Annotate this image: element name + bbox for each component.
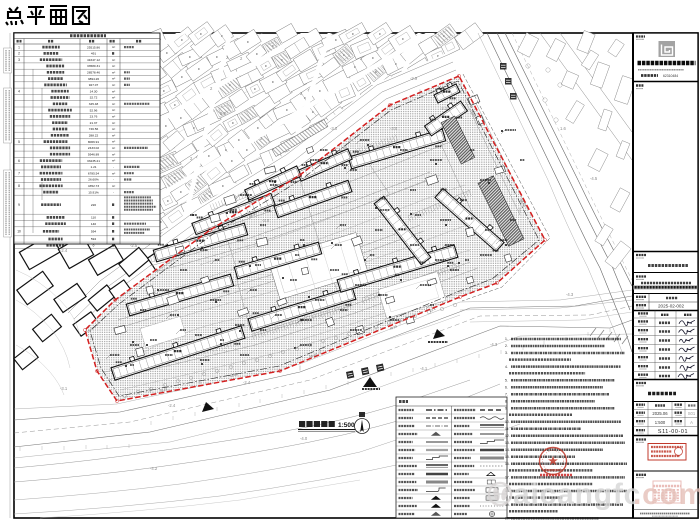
svg-text:-: - — [113, 190, 114, 194]
svg-text:m²: m² — [112, 89, 115, 93]
svg-text:2.8: 2.8 — [220, 111, 226, 116]
svg-text:-3.0: -3.0 — [390, 126, 398, 131]
svg-text:7.: 7. — [505, 392, 508, 396]
svg-text:m²: m² — [112, 184, 115, 188]
svg-text:16.: 16. — [505, 462, 510, 466]
svg-text:746.56: 746.56 — [89, 127, 99, 131]
svg-text:m²: m² — [112, 121, 115, 125]
svg-text:23.76: 23.76 — [90, 115, 98, 119]
svg-text:220: 220 — [91, 203, 96, 207]
svg-text:4.: 4. — [505, 365, 508, 369]
svg-text:1.6: 1.6 — [560, 126, 566, 131]
svg-text:6.: 6. — [505, 385, 508, 389]
svg-text:-4.0: -4.0 — [300, 436, 308, 441]
svg-text:3.: 3. — [505, 351, 508, 355]
svg-text:4352.73: 4352.73 — [88, 184, 99, 188]
svg-text:52.96: 52.96 — [90, 108, 98, 112]
svg-text:m²: m² — [112, 146, 115, 150]
svg-text:5946.89: 5946.89 — [88, 152, 99, 156]
svg-text:11.: 11. — [505, 427, 510, 431]
svg-text:15.91%: 15.91% — [88, 190, 99, 194]
svg-text:32.72: 32.72 — [90, 96, 98, 100]
svg-text:33580.31: 33580.31 — [87, 64, 100, 68]
svg-text:-2.4: -2.4 — [168, 403, 176, 408]
svg-text:10.: 10. — [505, 420, 510, 424]
svg-text:2025-02-002: 2025-02-002 — [658, 304, 684, 309]
svg-text:-3.0: -3.0 — [262, 218, 270, 223]
svg-text:m²: m² — [112, 102, 115, 106]
svg-text:9: 9 — [18, 203, 20, 207]
svg-text:1.21: 1.21 — [90, 165, 96, 169]
svg-text:m²: m² — [112, 96, 115, 100]
svg-text:5.: 5. — [505, 378, 508, 382]
svg-text:5: 5 — [18, 140, 20, 144]
svg-text:2025.06: 2025.06 — [652, 411, 668, 416]
svg-text:6785.54: 6785.54 — [88, 171, 99, 175]
svg-text:14.: 14. — [505, 448, 510, 452]
svg-text:62310484: 62310484 — [663, 74, 678, 78]
svg-text:9.: 9. — [505, 406, 508, 410]
svg-text:-3.0: -3.0 — [330, 126, 338, 131]
svg-text:m²: m² — [112, 115, 115, 119]
svg-text:8.: 8. — [505, 399, 508, 403]
svg-text:110: 110 — [91, 216, 96, 220]
svg-text:-: - — [113, 165, 114, 169]
svg-text:-4.3: -4.3 — [566, 292, 574, 297]
svg-text:1.: 1. — [505, 337, 508, 341]
svg-text:15.: 15. — [505, 455, 510, 459]
svg-text:1:500: 1:500 — [655, 420, 666, 425]
svg-text:-2.4: -2.4 — [60, 248, 68, 253]
svg-text:26.60%: 26.60% — [88, 178, 99, 182]
svg-text:2433.02: 2433.02 — [88, 146, 99, 150]
svg-text:3: 3 — [18, 58, 20, 62]
svg-text:m²: m² — [112, 108, 115, 112]
svg-text:594: 594 — [91, 230, 96, 234]
svg-text:17.: 17. — [505, 476, 510, 480]
svg-text:-4.5: -4.5 — [590, 176, 598, 181]
svg-text:0: 0 — [93, 244, 95, 248]
svg-text:-2.4: -2.4 — [243, 380, 251, 385]
svg-text:491: 491 — [91, 52, 96, 56]
svg-text:8066.91: 8066.91 — [88, 140, 99, 144]
svg-text:927.07: 927.07 — [89, 83, 99, 87]
svg-text:-4.2: -4.2 — [150, 466, 158, 471]
svg-text:m²: m² — [112, 127, 115, 131]
svg-text:2: 2 — [18, 52, 20, 56]
svg-text:-: - — [113, 178, 114, 182]
svg-text:14.30: 14.30 — [90, 89, 98, 93]
svg-text:S11-00-01: S11-00-01 — [658, 429, 688, 435]
svg-text:10: 10 — [17, 230, 21, 234]
svg-text:1: 1 — [18, 45, 20, 49]
svg-text:28578.46: 28578.46 — [87, 71, 100, 75]
svg-text:-4.1: -4.1 — [420, 366, 428, 371]
svg-text:594: 594 — [91, 237, 96, 241]
svg-text:41647.12: 41647.12 — [87, 58, 100, 62]
svg-text:6: 6 — [18, 159, 20, 163]
svg-text:.com: .com — [633, 478, 700, 511]
svg-text:1:500: 1:500 — [338, 422, 355, 429]
svg-text:345.48: 345.48 — [89, 102, 99, 106]
svg-text:288.22: 288.22 — [89, 134, 99, 138]
svg-text:m²: m² — [112, 45, 115, 49]
svg-text:m²: m² — [112, 133, 115, 137]
svg-text:m²: m² — [112, 64, 115, 68]
svg-text:S01: S01 — [688, 411, 696, 416]
svg-text:m²: m² — [112, 152, 115, 156]
svg-text:m²: m² — [112, 77, 115, 81]
svg-text:140: 140 — [91, 222, 96, 226]
svg-text:12.: 12. — [505, 434, 510, 438]
svg-text:-3.1: -3.1 — [440, 106, 448, 111]
svg-text:m²: m² — [112, 159, 115, 163]
svg-text:13.: 13. — [505, 441, 510, 445]
svg-text:-2.9: -2.9 — [410, 76, 418, 81]
svg-text:4: 4 — [18, 89, 20, 93]
svg-text:3894.26: 3894.26 — [88, 77, 99, 81]
svg-text:7: 7 — [18, 171, 20, 175]
svg-text:33235.21: 33235.21 — [87, 159, 100, 163]
svg-text:m²: m² — [112, 70, 115, 74]
svg-text:m²: m² — [112, 140, 115, 144]
svg-text:m²: m² — [112, 171, 115, 175]
svg-text:A: A — [690, 420, 693, 425]
svg-text:-4.3: -4.3 — [490, 342, 498, 347]
svg-text:m²: m² — [112, 83, 115, 87]
svg-text:8: 8 — [18, 184, 20, 188]
svg-text:m²: m² — [112, 58, 115, 62]
svg-text:21.37: 21.37 — [90, 121, 98, 125]
svg-text:2.: 2. — [505, 344, 508, 348]
svg-text:aicangfc: aicangfc — [513, 478, 641, 511]
svg-text:20.: 20. — [505, 516, 510, 520]
svg-text:25515.86: 25515.86 — [87, 45, 100, 49]
